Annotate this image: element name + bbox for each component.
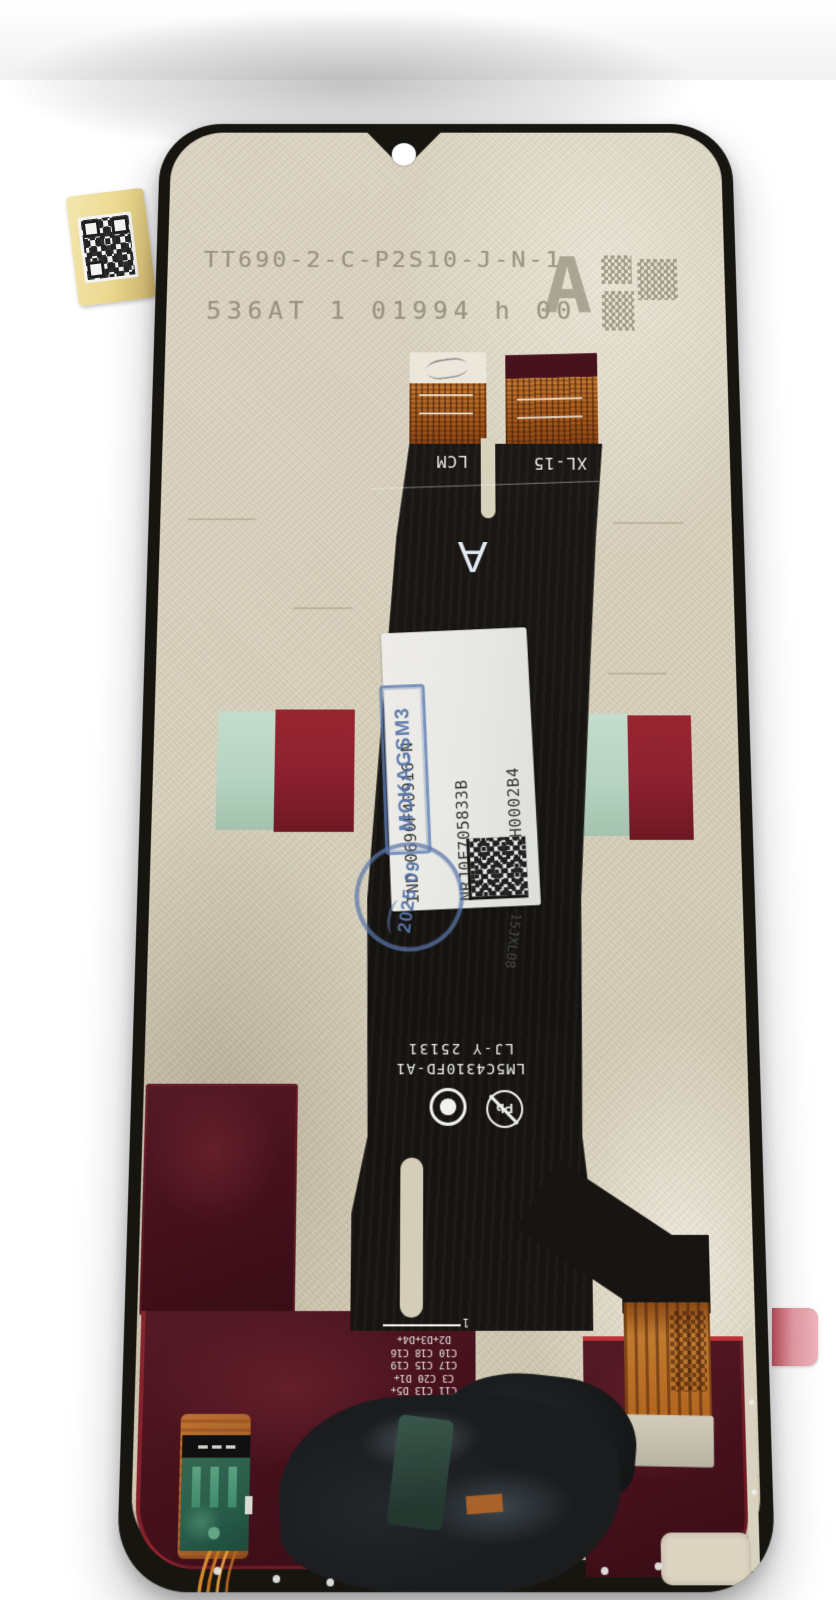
alignment-line <box>419 413 473 415</box>
green-pcb-module <box>180 1458 250 1551</box>
camera-hole <box>392 143 416 166</box>
copper-contacts <box>409 383 486 445</box>
flex-tab-lcm <box>409 352 486 445</box>
tape-strip-red-left <box>274 710 355 832</box>
connector-strip <box>182 1435 251 1457</box>
flex-part-marking: LM5C4310FD-A1 LJ-Y 25131 <box>386 1040 534 1077</box>
print-line-2: 536AT 1 01994 h 00 <box>206 298 577 325</box>
flex-letter-a: A <box>458 531 488 582</box>
service-label: IND-0690F40916-N NRJ0F705833B R7A000H000… <box>381 627 541 911</box>
grade-letter: A <box>542 241 592 330</box>
silkscreen-row: C3 C20 D1+ <box>376 1371 471 1384</box>
bezel-dot <box>273 1575 281 1583</box>
qc-stamp-box: MOKAGSM3 <box>379 684 432 855</box>
bezel-dot <box>751 1489 757 1495</box>
flex-slot-lower <box>400 1158 423 1318</box>
etch-dash <box>293 607 352 609</box>
handwriting-mark <box>426 356 469 381</box>
flex-label-xl15: XL-15 <box>515 453 604 472</box>
pcb-trace <box>228 1467 237 1508</box>
datamatrix-print-icon <box>637 259 678 300</box>
datamatrix-print-icon <box>602 291 635 331</box>
pcb-trace <box>210 1467 219 1508</box>
alignment-circle-icon <box>429 1088 466 1126</box>
pb-free-text: Pb <box>496 1101 513 1117</box>
tape-strip-red-right-outer <box>627 715 693 840</box>
etch-dash <box>188 518 256 520</box>
copper-connector-bit <box>466 1494 504 1515</box>
bezel-dot <box>326 1578 334 1586</box>
bezel-dot <box>601 1567 609 1575</box>
flex-tab-main <box>505 353 598 447</box>
qc-stamp-box-text: MOKAGSM3 <box>391 707 419 832</box>
print-line-1: TT690-2-C-P2S10-J-N-1 <box>204 247 563 273</box>
panel-maroon-left-block <box>139 1084 298 1316</box>
pin1-marker-line <box>383 1324 461 1326</box>
bezel-dot <box>749 1399 754 1405</box>
qr-code-icon <box>77 211 139 283</box>
floor-shadow <box>0 0 836 80</box>
pb-free-icon: Pb <box>486 1090 523 1128</box>
qr-finder-icon <box>82 219 101 238</box>
etch-dash <box>613 522 683 524</box>
handwritten-label <box>410 352 487 383</box>
silkscreen-row: C10 C18 C16 <box>376 1346 471 1359</box>
pcb-connector-nub <box>245 1496 253 1514</box>
flex-part-number: LM5C4310FD-A1 <box>386 1060 534 1077</box>
flex-date-code: LJ-Y 25131 <box>387 1040 535 1057</box>
datamatrix-print-icon <box>601 255 632 284</box>
scene: { "photo": { "subject": "phone-lcd-assem… <box>0 0 836 1600</box>
qr-finder-icon <box>110 216 129 235</box>
silkscreen-row: D2+D3+D4+ <box>376 1333 471 1346</box>
etch-dash <box>608 673 667 675</box>
qr-sticker <box>66 188 157 307</box>
pcb-pad-dot <box>208 1527 220 1540</box>
tape-strip-mint-left <box>215 711 275 829</box>
branch-copper-contacts <box>623 1302 712 1417</box>
label-datamatrix-icon <box>466 836 528 900</box>
silkscreen-row: C17 C15 C19 <box>376 1358 471 1371</box>
alignment-line <box>419 394 473 396</box>
pcb-trace <box>191 1467 200 1508</box>
qr-finder-icon <box>87 260 106 279</box>
alignment-line <box>517 415 582 418</box>
flex-label-lcm: LCM <box>417 451 487 470</box>
bezel-dot <box>655 1562 663 1570</box>
pull-tab-sticker <box>772 1308 818 1366</box>
pin1-marker: 1 <box>463 1315 469 1327</box>
tab-stiffener <box>505 353 597 379</box>
orange-flex-wires <box>177 1544 279 1592</box>
copper-contacts <box>505 377 598 447</box>
alignment-line <box>517 397 582 400</box>
phone-lcd-assembly: TT690-2-C-P2S10-J-N-1 536AT 1 01994 h 00… <box>116 124 776 1592</box>
corner-foam-patch <box>660 1533 752 1586</box>
